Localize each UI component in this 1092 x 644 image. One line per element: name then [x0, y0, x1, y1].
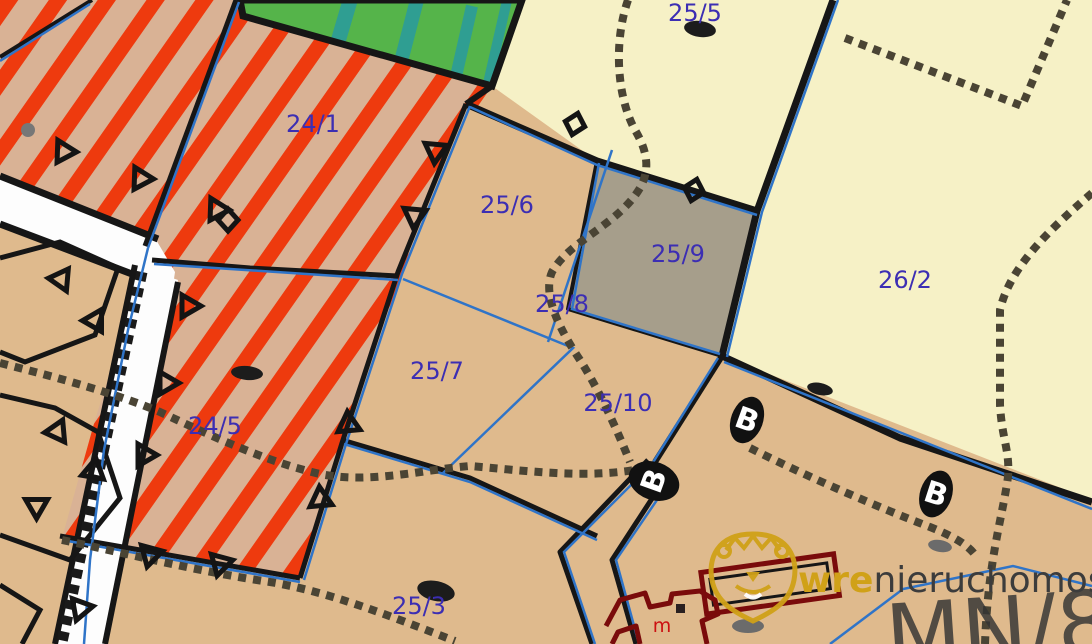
parcel-label-26-2: 26/2 [878, 266, 932, 294]
parcel-label-24-5: 24/5 [188, 412, 242, 440]
cadastral-map[interactable]: MN/8 24/125/525/625/925/826/225/725/1024… [0, 0, 1092, 644]
parcel-label-25-5: 25/5 [668, 0, 722, 27]
building-label-m-0: m [653, 615, 672, 637]
parcel-label-25-7: 25/7 [410, 357, 464, 385]
watermark-text: wrenieruchomości [798, 560, 1092, 601]
parcel-label-25-8: 25/8 [535, 290, 589, 318]
map-canvas: MN/8 24/125/525/625/925/826/225/725/1024… [0, 0, 1092, 644]
parcel-label-25-6: 25/6 [480, 191, 534, 219]
parcel-label-25-9: 25/9 [651, 240, 705, 268]
building-m-labels-layer: m [653, 615, 672, 637]
parcel-label-24-1: 24/1 [286, 110, 340, 138]
parcel-label-25-3: 25/3 [392, 592, 446, 620]
parcel-label-25-10: 25/10 [583, 389, 652, 417]
